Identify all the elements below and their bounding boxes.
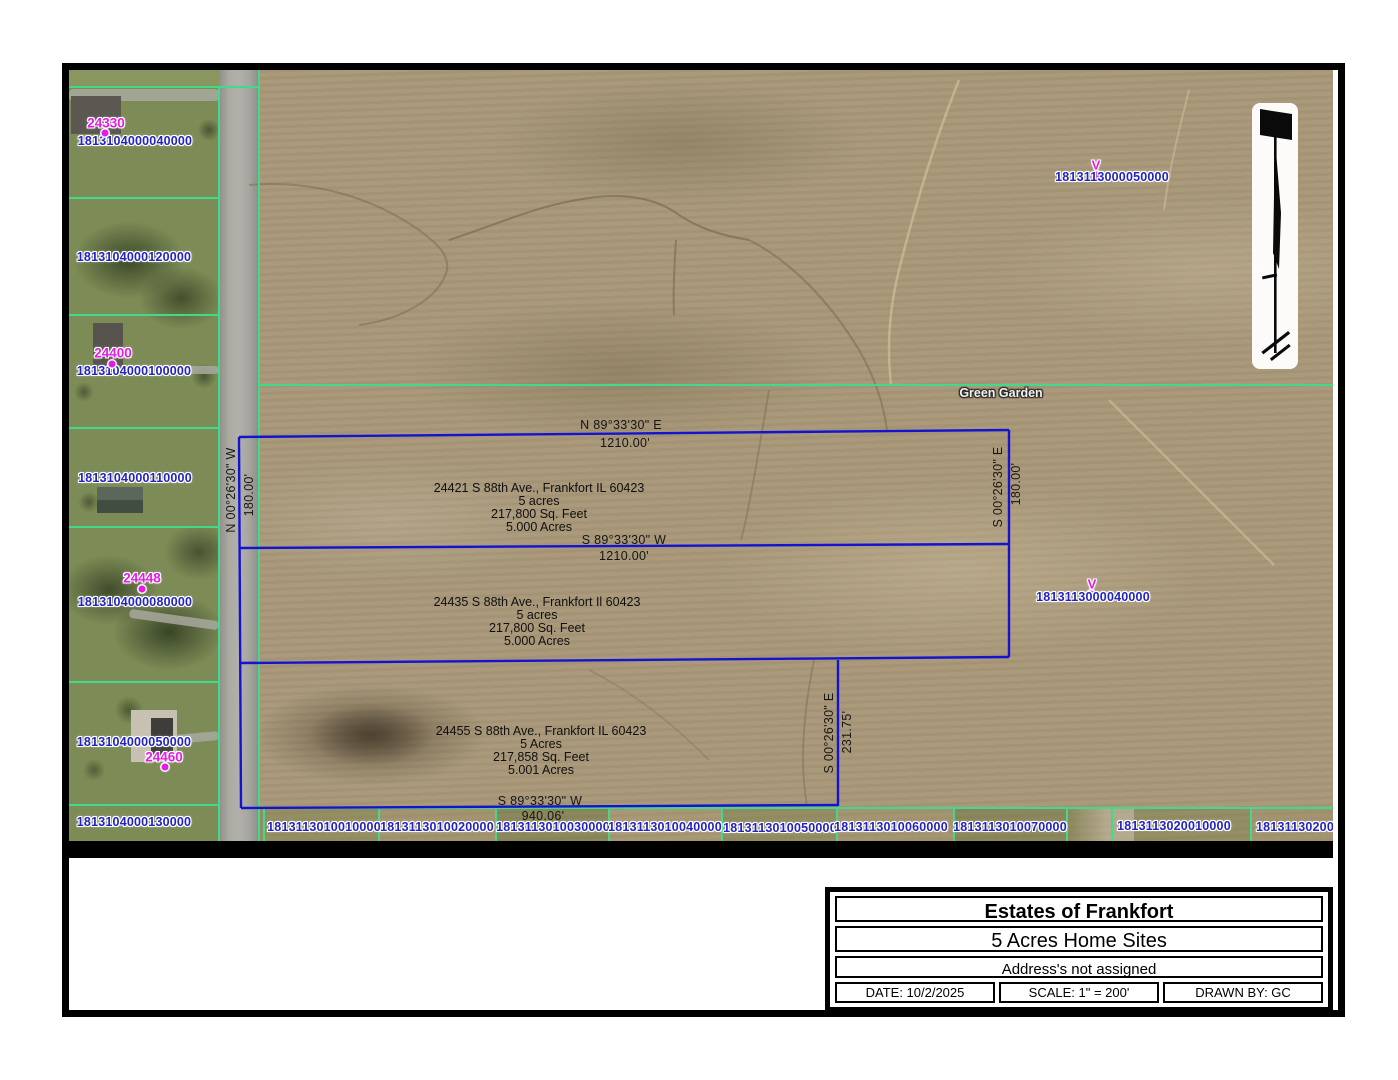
house-number-label: 24400 <box>94 346 132 361</box>
bearing-label: N 89°33'30" E <box>580 418 662 432</box>
title-block-scale: SCALE: 1" = 200' <box>999 982 1159 1003</box>
bearing-label: N 00°26'30" W <box>224 447 238 532</box>
parcel-id-label: 1813104000050000 <box>77 735 191 749</box>
parcel-id-label: 1813104000040000 <box>78 134 192 148</box>
lot-info-block: 24435 S 88th Ave., Frankfort Il 60423 5 … <box>434 596 641 648</box>
parcel-id-label: 1813104000110000 <box>78 471 192 485</box>
title-block-note: Address's not assigned <box>835 956 1323 978</box>
title-block-drawn-by: DRAWN BY: GC <box>1163 982 1323 1003</box>
bottom-parcel-id-label: 1813113010040000 <box>608 820 722 834</box>
title-block-bottom-row: DATE: 10/2/2025 SCALE: 1" = 200' DRAWN B… <box>835 982 1323 1003</box>
bottom-parcel-id-label: 1813113020010000 <box>1117 819 1231 833</box>
lot-info-block: 24455 S 88th Ave., Frankfort IL 60423 5 … <box>436 725 647 777</box>
bearing-label: 940.06' <box>522 809 565 823</box>
parcel-id-label: 1813104000130000 <box>77 815 191 829</box>
bearing-label: 1210.00' <box>600 436 650 450</box>
lot-info-block: 24421 S 88th Ave., Frankfort IL 60423 5 … <box>434 482 645 534</box>
bottom-parcel-id-label: 1813113010020000 <box>380 820 494 834</box>
bearing-label: S 89°33'30" W <box>498 794 583 808</box>
bottom-parcel-id-label: 1813113010070000 <box>953 820 1067 834</box>
title-block-title: Estates of Frankfort <box>835 896 1323 922</box>
parcel-id-label: 1813104000120000 <box>77 250 191 264</box>
bottom-parcel-id-label: 1813113010050000 <box>723 821 837 835</box>
aerial-map: Green Garden 181310400004000018131040001… <box>69 70 1333 858</box>
marker-dot <box>139 586 146 593</box>
parcel-id-label: 1813104000100000 <box>77 364 191 378</box>
bearing-label: 231.75' <box>840 711 854 754</box>
bearing-label: 1210.00' <box>599 549 649 563</box>
house-number-label: 24330 <box>87 116 125 131</box>
bearing-label: 180.00' <box>242 474 256 517</box>
house-number-label: 24460 <box>145 750 183 765</box>
bottom-parcel-id-label: 1813113010060000 <box>834 820 948 834</box>
plat-page: Green Garden 181310400004000018131040001… <box>0 0 1398 1080</box>
title-block-subtitle: 5 Acres Home Sites <box>835 926 1323 951</box>
parcel-id-label: 1813113000050000 <box>1055 170 1169 184</box>
parcel-id-label: 1813113000040000 <box>1036 590 1150 604</box>
marker-dot <box>109 361 116 368</box>
bottom-parcel-id-label: 18131130200 <box>1256 820 1333 834</box>
marker-dot <box>162 764 169 771</box>
bearing-label: S 00°26'30" E <box>991 446 1005 527</box>
bearing-label: 180.00' <box>1009 463 1023 506</box>
parcel-id-label: 1813104000080000 <box>78 595 192 609</box>
house-number-label: 24448 <box>123 571 161 586</box>
title-block: Estates of Frankfort 5 Acres Home Sites … <box>825 887 1333 1012</box>
bottom-parcel-id-label: 1813113010010000 <box>267 820 381 834</box>
title-block-date: DATE: 10/2/2025 <box>835 982 995 1003</box>
map-labels-layer: 1813104000040000181310400012000018131040… <box>69 70 1333 858</box>
bearing-label: S 89°33'30" W <box>582 533 667 547</box>
marker-dot <box>102 130 109 137</box>
bearing-label: S 00°26'30" E <box>822 692 836 773</box>
